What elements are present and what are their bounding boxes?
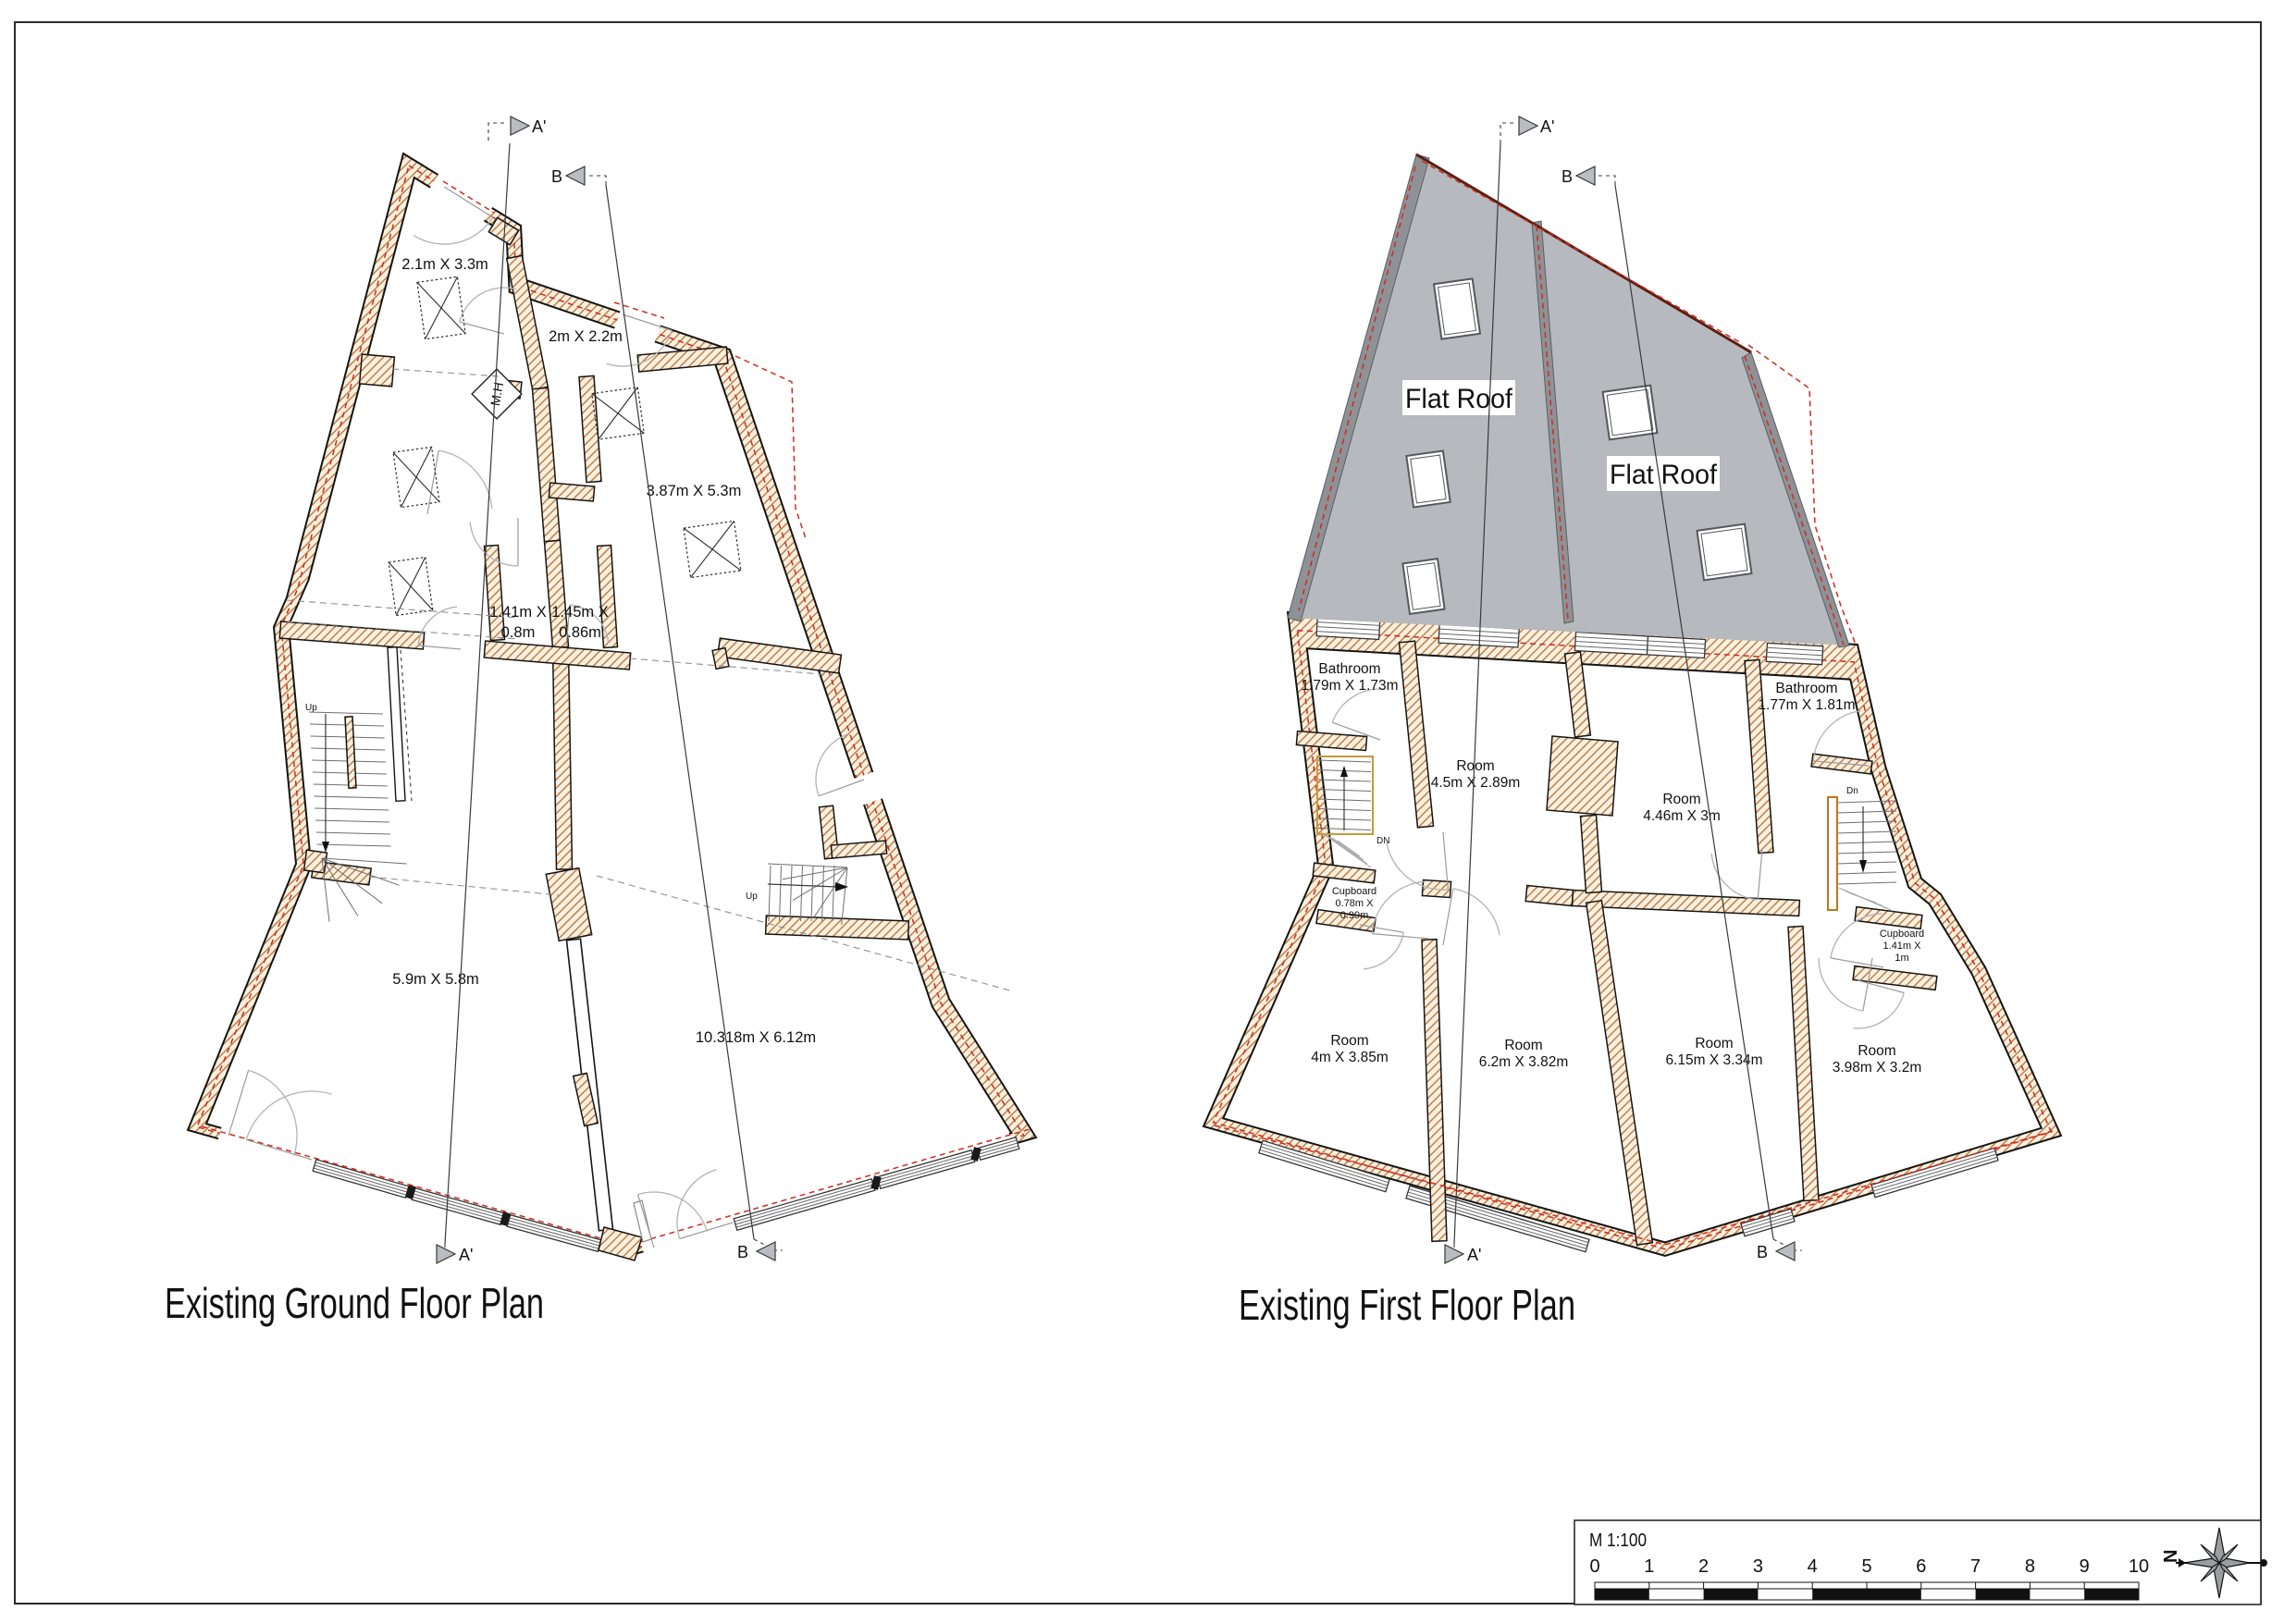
svg-text:2: 2	[1698, 1556, 1709, 1577]
svg-text:4: 4	[1808, 1556, 1818, 1577]
svg-text:Flat Roof: Flat Roof	[1405, 384, 1513, 414]
svg-text:1.41m X: 1.41m X	[489, 604, 546, 621]
svg-text:Bathroom: Bathroom	[1318, 661, 1380, 677]
svg-text:4m X 3.85m: 4m X 3.85m	[1311, 1050, 1389, 1065]
svg-text:5.9m X 5.8m: 5.9m X 5.8m	[392, 971, 479, 988]
svg-text:Room: Room	[1504, 1038, 1542, 1053]
svg-text:A': A'	[532, 117, 546, 136]
svg-text:Dn: Dn	[1846, 786, 1858, 796]
svg-text:6.15m X 3.34m: 6.15m X 3.34m	[1665, 1052, 1762, 1068]
svg-text:A': A'	[1540, 117, 1554, 136]
svg-text:Room: Room	[1695, 1036, 1733, 1051]
svg-text:A': A'	[459, 1246, 473, 1264]
svg-text:8: 8	[2025, 1556, 2035, 1577]
svg-text:3.98m X 3.2m: 3.98m X 3.2m	[1833, 1060, 1922, 1076]
svg-text:4.5m X 2.89m: 4.5m X 2.89m	[1431, 775, 1521, 791]
svg-text:B: B	[1562, 167, 1573, 186]
svg-text:10.318m X 6.12m: 10.318m X 6.12m	[696, 1029, 816, 1046]
svg-text:Room: Room	[1330, 1033, 1368, 1049]
svg-text:Room: Room	[1858, 1043, 1895, 1059]
svg-text:Up: Up	[305, 703, 317, 713]
svg-text:0: 0	[1589, 1556, 1599, 1577]
svg-text:Bathroom: Bathroom	[1775, 681, 1837, 696]
svg-text:DN: DN	[1376, 836, 1389, 846]
svg-text:Up: Up	[746, 891, 758, 902]
svg-text:0.8m: 0.8m	[501, 624, 536, 641]
svg-text:B: B	[737, 1243, 748, 1261]
svg-text:Cupboard: Cupboard	[1880, 928, 1924, 940]
svg-text:Existing First Floor Plan: Existing First Floor Plan	[1239, 1281, 1575, 1329]
svg-text:A': A'	[1467, 1246, 1481, 1264]
svg-text:Cupboard: Cupboard	[1332, 886, 1376, 897]
svg-text:7: 7	[1970, 1556, 1981, 1577]
svg-text:M 1:100: M 1:100	[1589, 1531, 1647, 1551]
svg-text:6: 6	[1916, 1556, 1926, 1577]
svg-text:2.1m X 3.3m: 2.1m X 3.3m	[401, 256, 488, 273]
svg-text:2m X 2.2m: 2m X 2.2m	[549, 328, 623, 345]
svg-text:B: B	[551, 167, 562, 186]
svg-text:0.99m: 0.99m	[1340, 910, 1369, 921]
svg-text:B: B	[1757, 1243, 1768, 1261]
svg-text:10: 10	[2129, 1556, 2149, 1577]
svg-text:0.78m X: 0.78m X	[1336, 898, 1375, 909]
svg-text:0.86m: 0.86m	[559, 624, 601, 641]
svg-text:1.77m X 1.81m: 1.77m X 1.81m	[1758, 697, 1855, 713]
svg-text:N: N	[2161, 1550, 2181, 1563]
svg-text:1.79m X 1.73m: 1.79m X 1.73m	[1301, 678, 1398, 694]
svg-text:Room: Room	[1456, 758, 1494, 774]
svg-text:Flat Roof: Flat Roof	[1610, 460, 1718, 490]
svg-text:1.41m X: 1.41m X	[1883, 941, 1922, 952]
svg-text:9: 9	[2080, 1556, 2090, 1577]
svg-text:6.2m X 3.82m: 6.2m X 3.82m	[1479, 1054, 1569, 1070]
svg-text:1m: 1m	[1895, 953, 1908, 964]
svg-text:1.45m X: 1.45m X	[551, 604, 608, 621]
svg-text:Existing Ground Floor Plan: Existing Ground Floor Plan	[165, 1279, 544, 1327]
svg-text:Room: Room	[1662, 792, 1700, 807]
svg-text:3: 3	[1753, 1556, 1763, 1577]
svg-text:3.87m X 5.3m: 3.87m X 5.3m	[647, 483, 742, 499]
svg-text:1: 1	[1644, 1556, 1654, 1577]
svg-text:5: 5	[1861, 1556, 1871, 1577]
